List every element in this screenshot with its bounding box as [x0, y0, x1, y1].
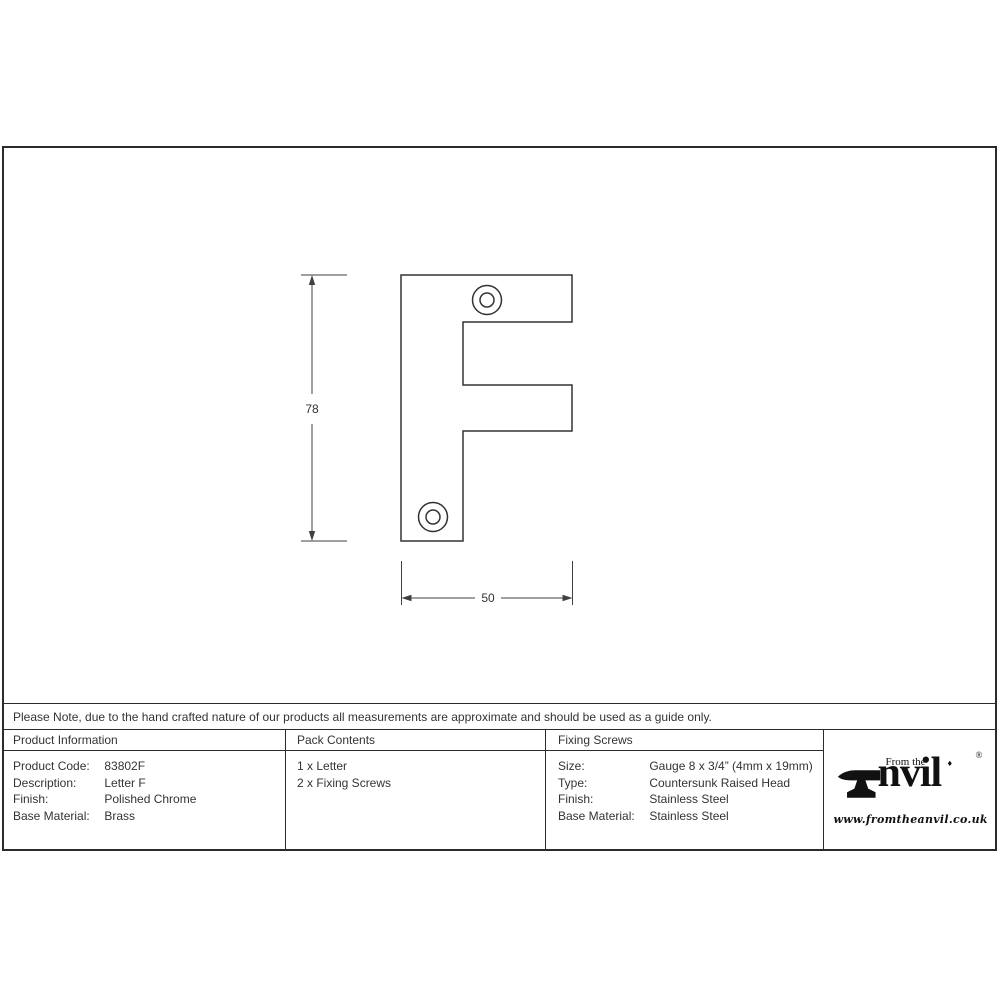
registered-trademark-icon: ® [976, 750, 983, 760]
arrow-up-icon [309, 275, 315, 285]
width-dimension-label: 50 [481, 591, 495, 605]
arrow-down-icon [309, 531, 315, 541]
table-row: Base Material: Stainless Steel [558, 808, 823, 825]
field-label: Type: [558, 775, 646, 792]
list-item: 1 x Letter [297, 758, 545, 775]
table-row: Finish: Polished Chrome [13, 791, 285, 808]
field-value: Letter F [104, 776, 145, 790]
sheet-frame: 78 50 Please Note, due to the hand craft… [2, 146, 997, 851]
table-row: Type: Countersunk Raised Head [558, 775, 823, 792]
field-label: Description: [13, 775, 101, 792]
field-label: Base Material: [558, 808, 646, 825]
field-value: Countersunk Raised Head [649, 776, 790, 790]
logo-url-text: www.fromtheanvil.co.uk [834, 813, 986, 826]
diamond-icon: ♦ [948, 758, 953, 768]
field-value: Stainless Steel [649, 809, 728, 823]
field-value: Polished Chrome [104, 792, 196, 806]
header-pack-contents: Pack Contents [285, 730, 545, 751]
brand-logo: From the ♦ nvil ® www.fromtheanvil.co.uk [823, 730, 995, 850]
field-label: Finish: [13, 791, 101, 808]
info-table: Product Information Pack Contents Fixing… [4, 729, 995, 849]
pack-contents-cell: 1 x Letter 2 x Fixing Screws [285, 751, 545, 850]
table-row: Size: Gauge 8 x 3/4” (4mm x 19mm) [558, 758, 823, 775]
arrow-right-icon [563, 595, 573, 601]
field-value: Stainless Steel [649, 792, 728, 806]
table-row: Description: Letter F [13, 775, 285, 792]
screw-hole-bottom [419, 503, 448, 532]
height-dimension: 78 [301, 275, 347, 541]
field-value: Gauge 8 x 3/4” (4mm x 19mm) [649, 759, 812, 773]
table-row: Base Material: Brass [13, 808, 285, 825]
field-label: Finish: [558, 791, 646, 808]
header-product-information: Product Information [4, 730, 285, 751]
field-value: Brass [104, 809, 135, 823]
product-spec-sheet: 78 50 Please Note, due to the hand craft… [0, 0, 1000, 1000]
field-label: Product Code: [13, 758, 101, 775]
arrow-left-icon [402, 595, 412, 601]
width-dimension: 50 [402, 561, 573, 605]
field-label: Size: [558, 758, 646, 775]
fixing-screws-cell: Size: Gauge 8 x 3/4” (4mm x 19mm) Type: … [545, 751, 823, 850]
screw-hole-top [473, 286, 502, 315]
note-row: Please Note, due to the hand crafted nat… [4, 703, 995, 729]
logo-brand-text: nvil [878, 750, 942, 796]
table-row: Finish: Stainless Steel [558, 791, 823, 808]
anvil-icon [836, 766, 882, 802]
header-fixing-screws: Fixing Screws [545, 730, 823, 751]
field-label: Base Material: [13, 808, 101, 825]
anvil-logo: From the ♦ nvil ® www.fromtheanvil.co.uk [834, 754, 986, 826]
height-dimension-label: 78 [305, 402, 319, 416]
table-row: Product Code: 83802F [13, 758, 285, 775]
letter-f-drawing: 78 50 [4, 148, 995, 703]
technical-drawing: 78 50 [4, 148, 995, 703]
product-information-cell: Product Code: 83802F Description: Letter… [4, 751, 285, 850]
note-text: Please Note, due to the hand crafted nat… [13, 710, 712, 724]
field-value: 83802F [104, 759, 145, 773]
list-item: 2 x Fixing Screws [297, 775, 545, 792]
